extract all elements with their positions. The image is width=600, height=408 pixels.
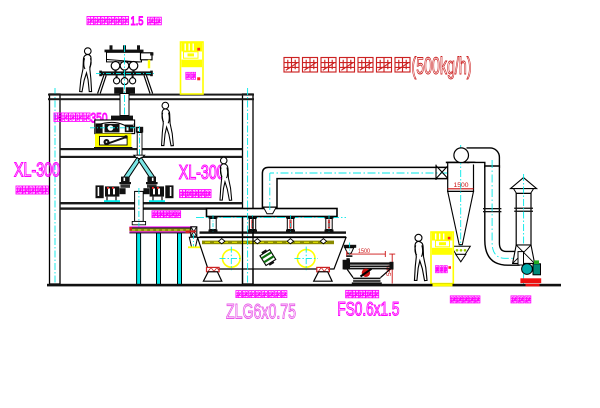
svg-text:FS0.6x1.5: FS0.6x1.5 xyxy=(337,300,399,321)
svg-text:XL-300: XL-300 xyxy=(14,160,60,182)
svg-text:XL-300: XL-300 xyxy=(179,162,225,184)
svg-text:1500: 1500 xyxy=(454,182,469,189)
svg-text:(500kg/h): (500kg/h) xyxy=(412,53,472,80)
svg-text:1.5: 1.5 xyxy=(131,14,144,28)
svg-text:1500: 1500 xyxy=(358,249,371,255)
svg-text:ZLG6x0.75: ZLG6x0.75 xyxy=(226,300,296,323)
